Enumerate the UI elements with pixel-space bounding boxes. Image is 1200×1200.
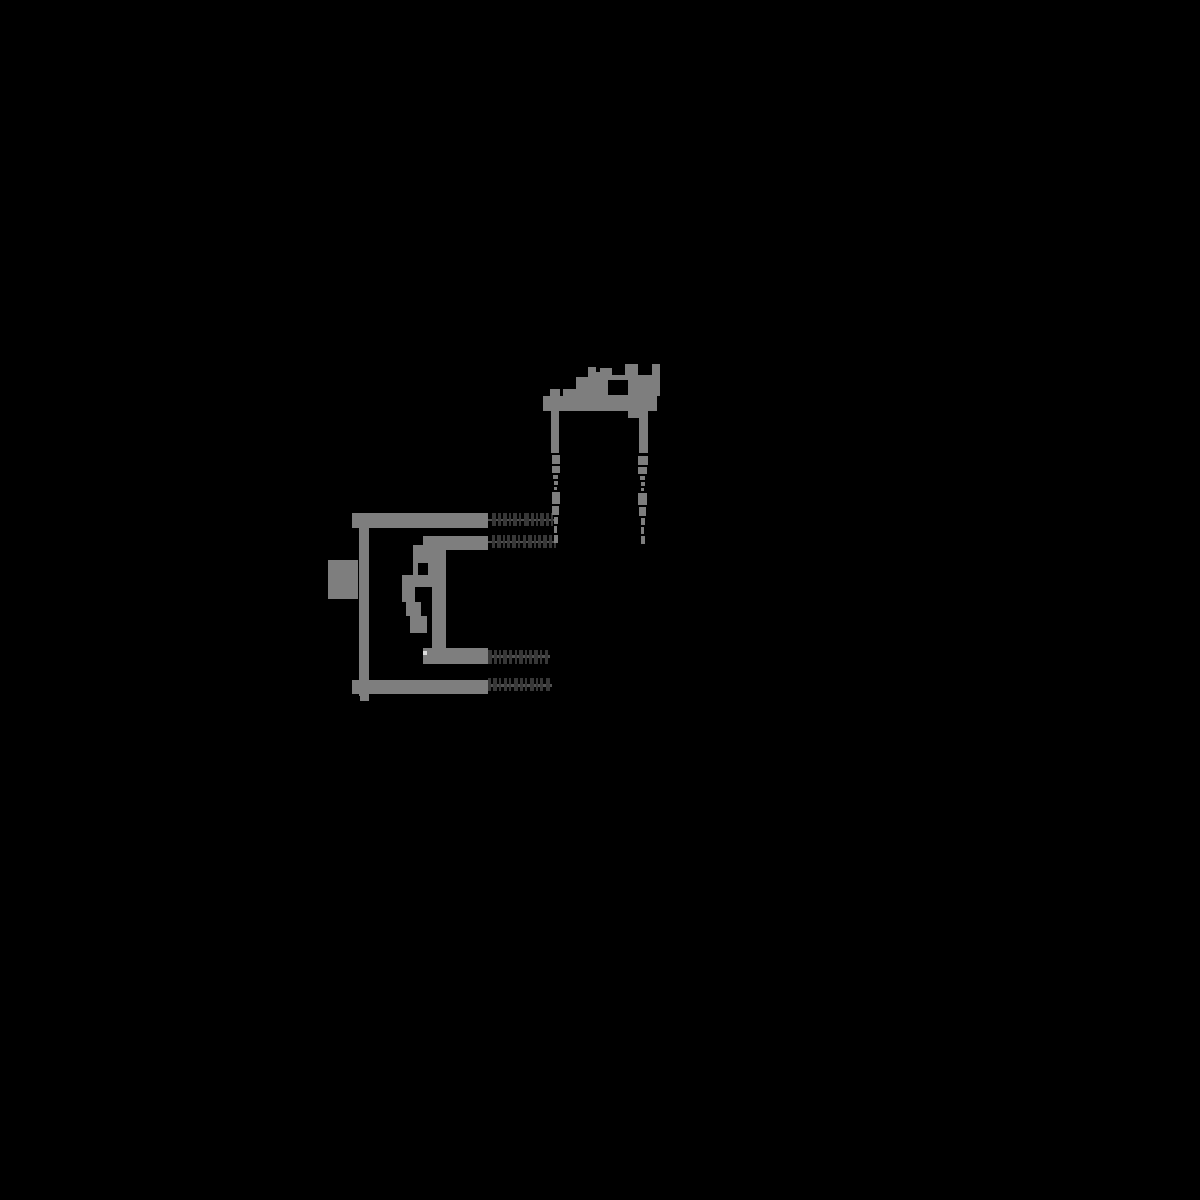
annotation-glyph-b: [563, 389, 576, 396]
annotation-leg-left: [551, 410, 559, 453]
annotation-bottom-tab: [628, 411, 648, 418]
drop-line-left-dash-2: [553, 475, 558, 479]
drop-line-left-dash-3: [554, 481, 558, 485]
annotation-glyph-c: [576, 377, 588, 396]
annotation-glyph-hole: [608, 380, 628, 395]
drop-line-right-dash-8: [641, 527, 644, 534]
drop-line-right-dash-6: [639, 507, 646, 516]
drop-line-right-dash-1: [638, 467, 647, 474]
drop-line-right-dash-3: [641, 482, 645, 486]
annotation-glyph-a: [550, 389, 560, 396]
drop-line-left-dash-5: [552, 492, 560, 504]
annotation-bracket-bar: [543, 396, 657, 411]
annotation-glyph-d: [588, 367, 596, 396]
drop-line-left-dash-1: [552, 466, 560, 473]
drop-line-right-dash-0: [638, 456, 648, 465]
drop-line-right-dash-9: [641, 536, 645, 544]
clade-annotation: [0, 0, 1200, 1200]
drop-line-left-dash-4: [554, 487, 557, 490]
drop-line-left-dash-7: [554, 517, 558, 524]
drop-line-left-dash-9: [554, 535, 558, 543]
drop-line-left-dash-0: [552, 455, 560, 464]
drop-line-right-dash-5: [638, 493, 647, 505]
drop-line-right-dash-7: [641, 518, 645, 525]
drop-line-right-dash-4: [641, 488, 644, 491]
drop-line-left-dash-6: [552, 506, 559, 515]
phylogenetic-tree-figure: [0, 0, 1200, 1200]
drop-line-right-dash-2: [640, 476, 645, 480]
drop-line-left-dash-8: [554, 526, 557, 533]
annotation-glyph-i: [652, 364, 660, 396]
